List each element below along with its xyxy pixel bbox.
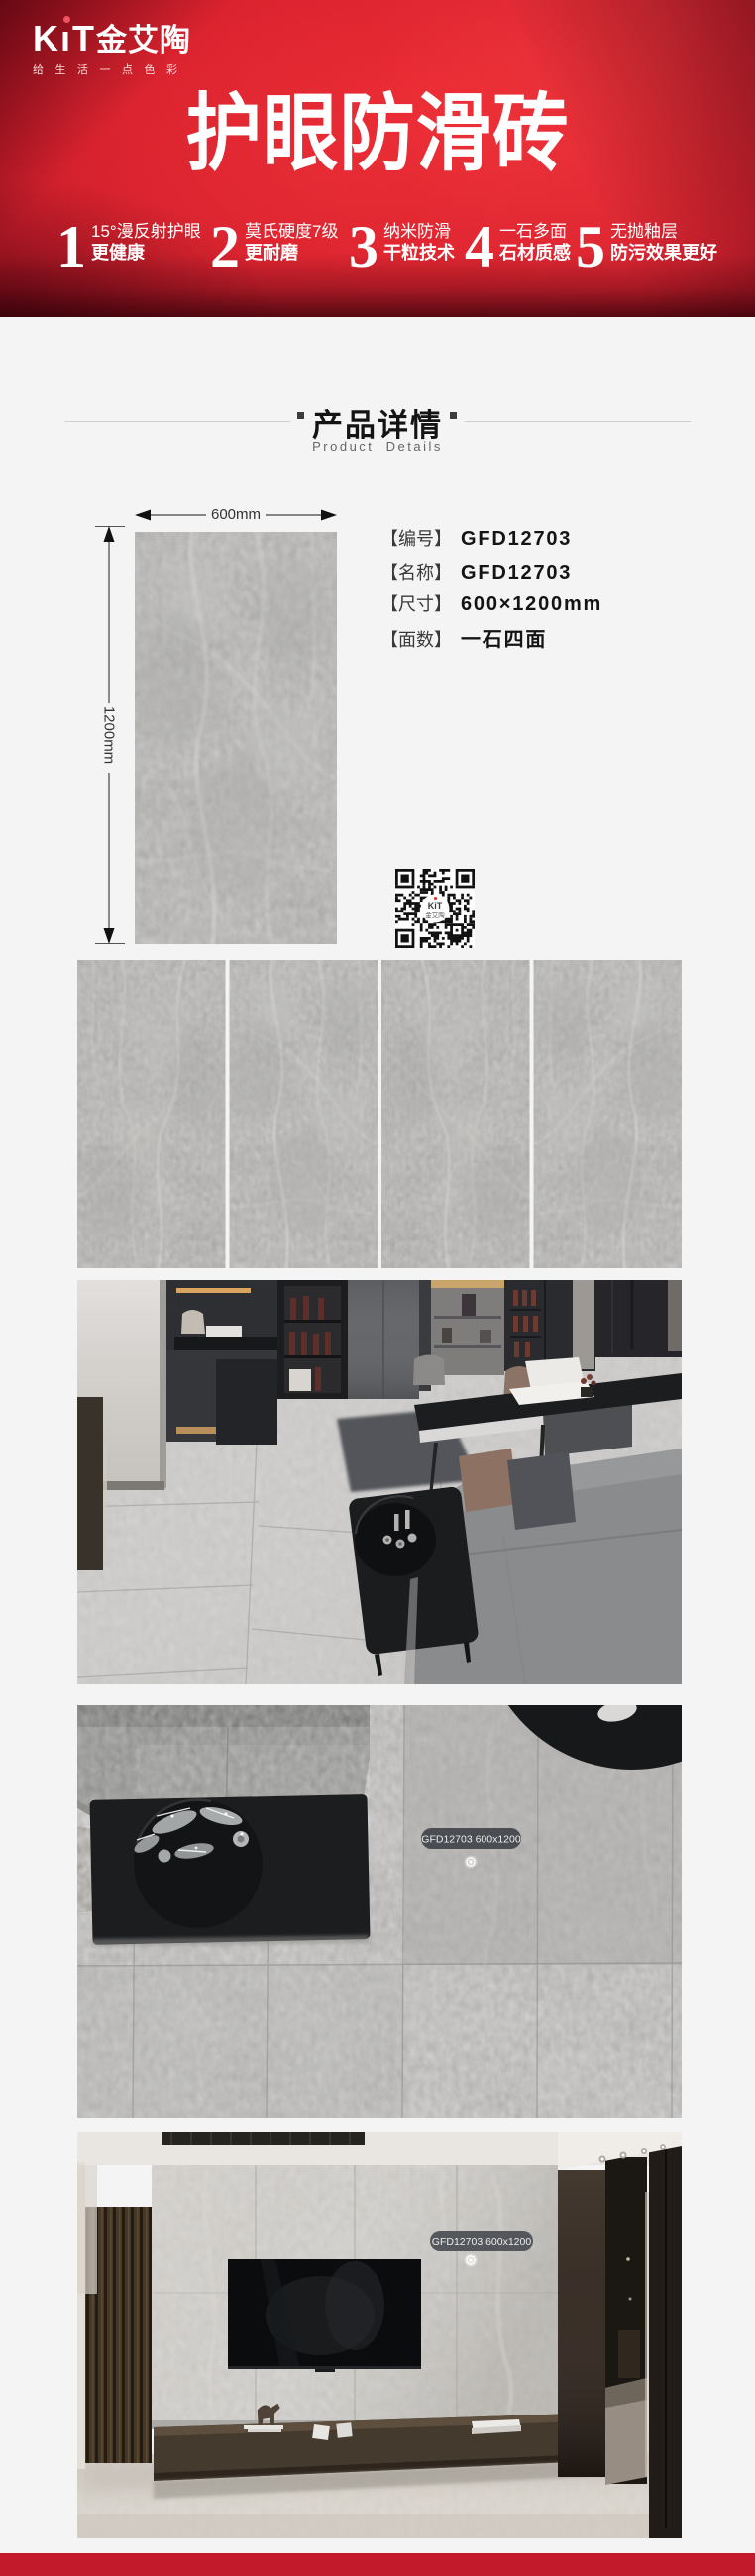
svg-text:GFD12703 600x1200: GFD12703 600x1200 bbox=[421, 1834, 521, 1846]
svg-text:GFD12703 600x1200: GFD12703 600x1200 bbox=[432, 2236, 532, 2248]
svg-text:金艾陶: 金艾陶 bbox=[425, 911, 445, 919]
svg-text:KiT: KiT bbox=[428, 901, 443, 911]
